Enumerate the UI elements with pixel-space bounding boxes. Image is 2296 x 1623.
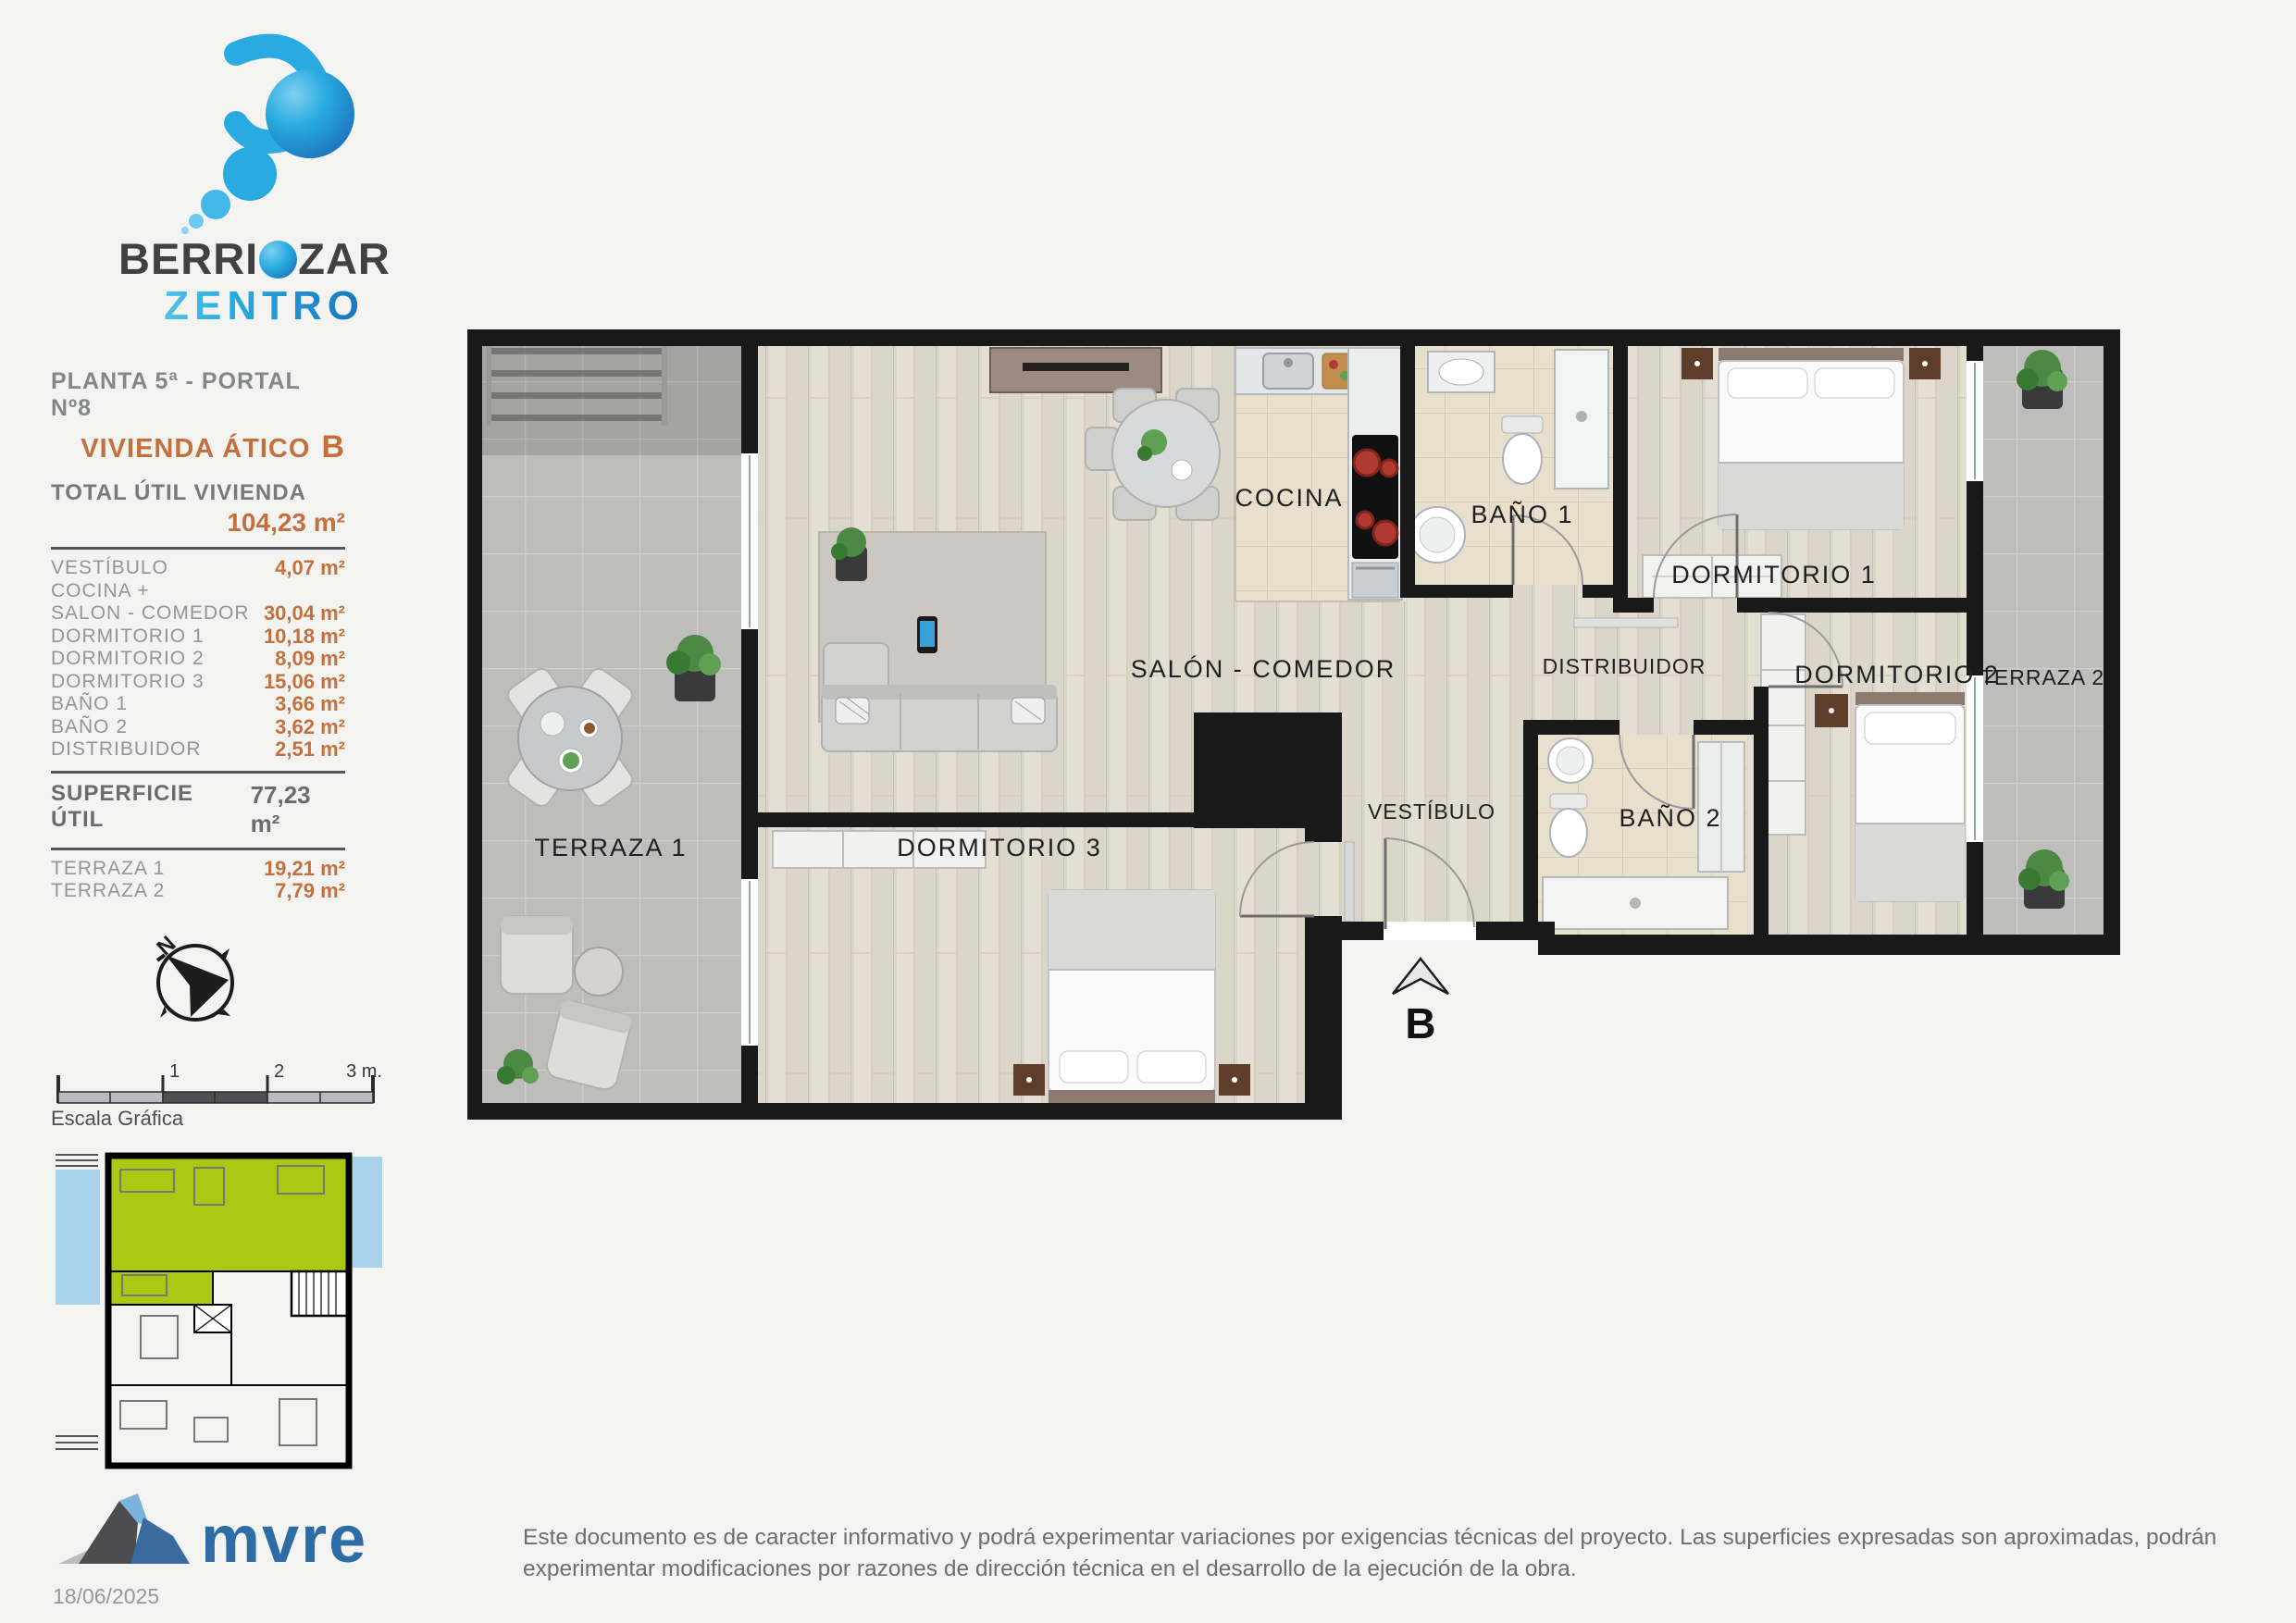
keyplan-terrace-right [352,1157,382,1268]
room-label-dormitorio3: DORMITORIO 3 [897,834,1102,861]
mvre-logo: mvre [51,1488,366,1577]
room-label-dormitorio2: DORMITORIO 2 [1794,661,2000,688]
mvre-wordmark: mvre [201,1503,366,1577]
area-row: COCINA + [51,580,345,603]
room-label-vestibulo: VESTÍBULO [1368,799,1496,824]
tv-sideboard [990,348,1161,392]
brochure-page: BERRIZAR ZENTRO PLANTA 5ª - PORTAL Nº8 V… [0,0,2296,1623]
room-label-bano1: BAÑO 1 [1471,500,1573,528]
unit-title: VIVIENDA ÁTICOB [51,429,345,465]
area-row: DORMITORIO 28,09 m² [51,648,345,671]
room-label-cocina: COCINA [1235,484,1343,512]
scale-tick-2: 2 [274,1064,284,1082]
logo-wordmark: BERRIZAR [118,233,365,284]
area-summary-panel: PLANTA 5ª - PORTAL Nº8 VIVIENDA ÁTICOB T… [51,368,345,903]
date-label: 18/06/2025 [53,1584,159,1609]
scale-bar: 1 2 3 m. [51,1064,384,1109]
area-row: BAÑO 23,62 m² [51,716,345,739]
terraza2-floor [1983,346,2104,936]
area-row: DORMITORIO 110,18 m² [51,626,345,649]
room-label-distribuidor: DISTRIBUIDOR [1543,654,1706,678]
logo-word-start: BERRI [118,234,258,283]
radiator [1345,842,1354,922]
entrance-letter: B [1405,999,1435,1047]
divider [51,771,345,774]
logo-o-dot-icon [259,241,297,279]
key-plan [56,1140,389,1476]
room-label-terraza2: TERRAZA 2 [1980,665,2104,689]
room-label-terraza1: TERRAZA 1 [534,834,687,861]
divider [51,848,345,850]
terrace-dining-set [504,665,636,810]
floor-plan: COCINA BAÑO 1 DORMITORIO 1 SALÓN - COMED… [467,324,2124,1131]
unit-letter: B [321,429,345,465]
area-row: BAÑO 13,66 m² [51,693,345,716]
area-row: DORMITORIO 315,06 m² [51,671,345,694]
compass-north-label: N [153,932,181,961]
superficie-row: SUPERFICIE ÚTIL 77,23 m² [51,781,345,838]
berriozar-splash-icon [120,26,370,235]
north-compass-icon: N [137,927,250,1036]
room-label-bano2: BAÑO 2 [1619,803,1721,832]
unit-name: VIVIENDA ÁTICO [81,434,310,464]
scale-tick-1: 1 [169,1064,180,1082]
logo-line2: ZENTRO [118,283,365,329]
terraza-row: TERRAZA 27,79 m² [51,880,345,903]
divider [51,547,345,550]
area-row: DISTRIBUIDOR2,51 m² [51,738,345,762]
logo-word-end: ZAR [298,234,391,283]
scale-caption: Escala Gráfica [51,1107,183,1131]
scale-tick-3: 3 m. [346,1064,382,1082]
room-label-dormitorio1: DORMITORIO 1 [1671,561,1877,588]
total-util-value: 104,23 m² [51,508,345,538]
keyplan-terrace-left [56,1170,100,1305]
plan-portal-line: PLANTA 5ª - PORTAL Nº8 [51,368,345,422]
radiator [1574,618,1678,627]
terraza-row: TERRAZA 119,21 m² [51,858,345,881]
disclaimer-text: Este documento es de caracter informativ… [523,1522,2237,1586]
room-label-salon: SALÓN - COMEDOR [1131,654,1396,683]
area-row: VESTÍBULO4,07 m² [51,557,345,580]
area-row: SALON - COMEDOR30,04 m² [51,602,345,626]
total-util-label: TOTAL ÚTIL VIVIENDA [51,480,345,506]
